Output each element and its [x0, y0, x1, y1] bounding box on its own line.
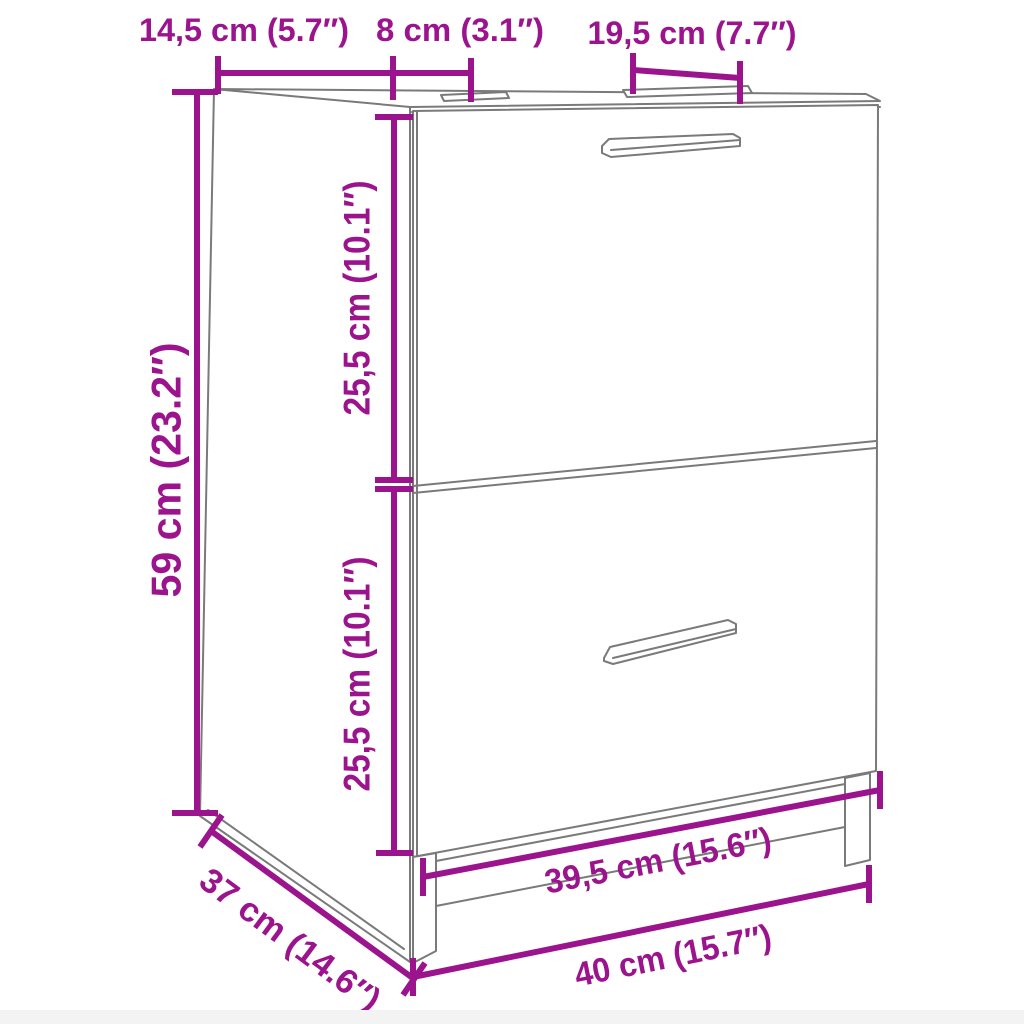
upper-front-label: 25,5 cm (10.1″)	[337, 181, 378, 416]
page-bottom-band	[0, 1010, 1024, 1024]
lower-front-label: 25,5 cm (10.1″)	[337, 557, 378, 792]
cabinet-front-face	[413, 105, 878, 857]
top-opening-label: 19,5 cm (7.7″)	[588, 15, 797, 51]
height-label: 59 cm (23.2″)	[143, 343, 190, 598]
top-gap-label: 8 cm (3.1″)	[376, 12, 544, 48]
cabinet-side-panel	[200, 89, 410, 962]
dimension-diagram: 14,5 cm (5.7″) 8 cm (3.1″) 19,5 cm (7.7″…	[0, 0, 1024, 1024]
cabinet-right-leg	[845, 773, 870, 866]
cabinet-drawing	[200, 86, 880, 963]
top-depth-label: 14,5 cm (5.7″)	[139, 12, 349, 48]
top-opening-dim-line	[633, 70, 740, 78]
diagram-canvas: 14,5 cm (5.7″) 8 cm (3.1″) 19,5 cm (7.7″…	[0, 0, 1024, 1024]
width-label: 40 cm (15.7″)	[571, 917, 775, 994]
